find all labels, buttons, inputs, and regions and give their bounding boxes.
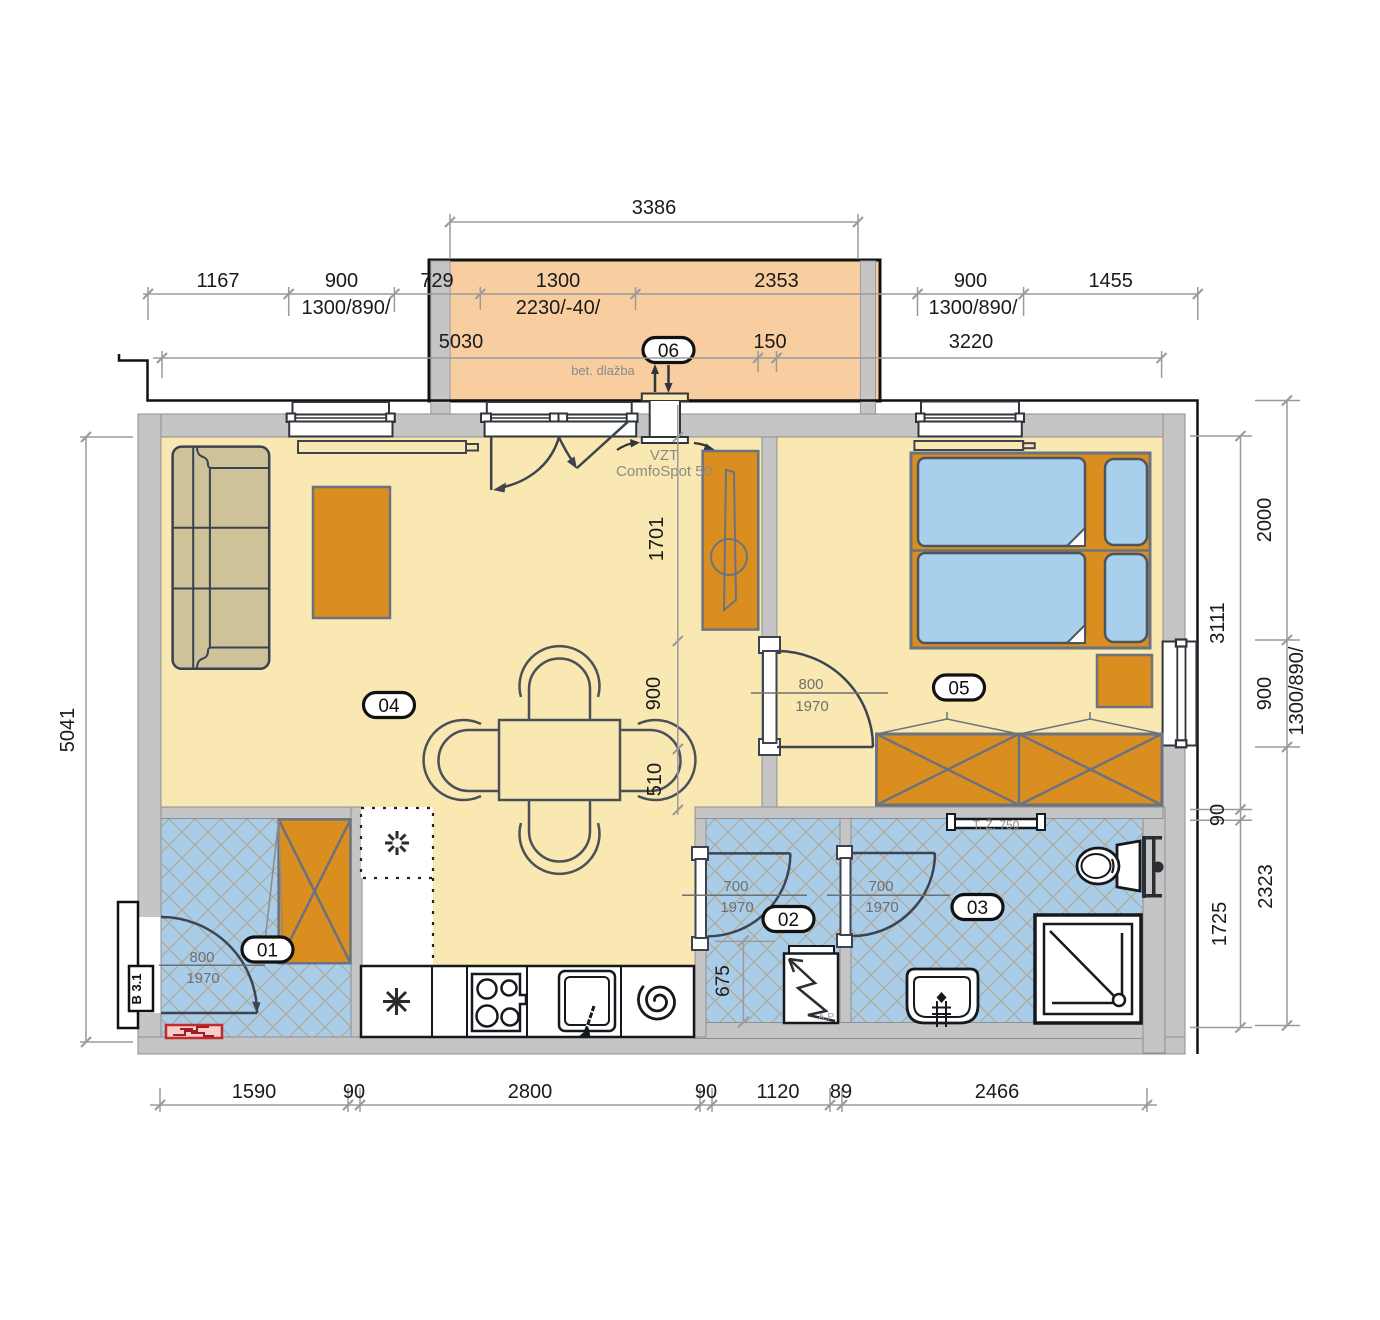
svg-text:1970: 1970 — [865, 899, 898, 916]
svg-text:1970: 1970 — [186, 970, 219, 987]
svg-text:2353: 2353 — [754, 270, 799, 292]
svg-text:05: 05 — [948, 679, 969, 700]
svg-text:2230/-40/: 2230/-40/ — [516, 297, 601, 319]
svg-text:3111: 3111 — [1207, 602, 1229, 644]
svg-text:1455: 1455 — [1088, 270, 1133, 292]
svg-text:2800: 2800 — [508, 1081, 553, 1103]
svg-text:1970: 1970 — [720, 899, 753, 916]
svg-text:01: 01 — [257, 941, 278, 962]
svg-text:1167: 1167 — [196, 270, 239, 292]
svg-text:1725: 1725 — [1209, 902, 1231, 947]
svg-text:T. Ž. 750: T. Ž. 750 — [973, 817, 1020, 832]
svg-text:700: 700 — [868, 878, 893, 895]
svg-text:5041: 5041 — [57, 708, 79, 753]
svg-text:510: 510 — [644, 763, 666, 796]
svg-text:3386: 3386 — [632, 197, 677, 219]
svg-text:800: 800 — [189, 949, 214, 966]
svg-text:03: 03 — [967, 898, 988, 919]
svg-text:900: 900 — [1254, 677, 1276, 710]
svg-text:3220: 3220 — [949, 331, 994, 353]
svg-text:675: 675 — [713, 965, 734, 997]
svg-text:2323: 2323 — [1255, 864, 1277, 909]
svg-text:90: 90 — [1207, 804, 1229, 826]
svg-text:ComfoSpot 50: ComfoSpot 50 — [616, 463, 712, 480]
svg-text:89: 89 — [830, 1081, 852, 1103]
svg-text:bet. dlažba: bet. dlažba — [571, 363, 635, 378]
svg-text:729: 729 — [420, 270, 453, 292]
svg-text:700: 700 — [723, 878, 748, 895]
svg-text:1300/890/: 1300/890/ — [1286, 646, 1308, 735]
svg-text:150: 150 — [753, 331, 786, 353]
svg-text:800: 800 — [798, 676, 823, 693]
svg-text:1701: 1701 — [646, 517, 668, 562]
svg-text:90: 90 — [343, 1081, 365, 1103]
svg-text:1590: 1590 — [232, 1081, 277, 1103]
svg-text:2000: 2000 — [1254, 498, 1276, 543]
svg-text:2466: 2466 — [975, 1081, 1020, 1103]
svg-text:1970: 1970 — [795, 698, 828, 715]
svg-text:02: 02 — [778, 910, 799, 931]
svg-text:900: 900 — [325, 270, 358, 292]
svg-text:900: 900 — [643, 677, 665, 710]
svg-text:90: 90 — [695, 1081, 717, 1103]
svg-text:900: 900 — [954, 270, 987, 292]
svg-text:04: 04 — [378, 696, 400, 717]
svg-text:B 3.1: B 3.1 — [129, 973, 144, 1004]
svg-text:A.P: A.P — [818, 1012, 834, 1023]
svg-text:1300: 1300 — [536, 270, 581, 292]
svg-text:5030: 5030 — [439, 331, 484, 353]
svg-text:VZT: VZT — [650, 447, 678, 464]
svg-text:1300/890/: 1300/890/ — [302, 297, 391, 319]
svg-text:1120: 1120 — [756, 1081, 799, 1103]
svg-text:1300/890/: 1300/890/ — [929, 297, 1018, 319]
svg-text:06: 06 — [658, 341, 679, 362]
